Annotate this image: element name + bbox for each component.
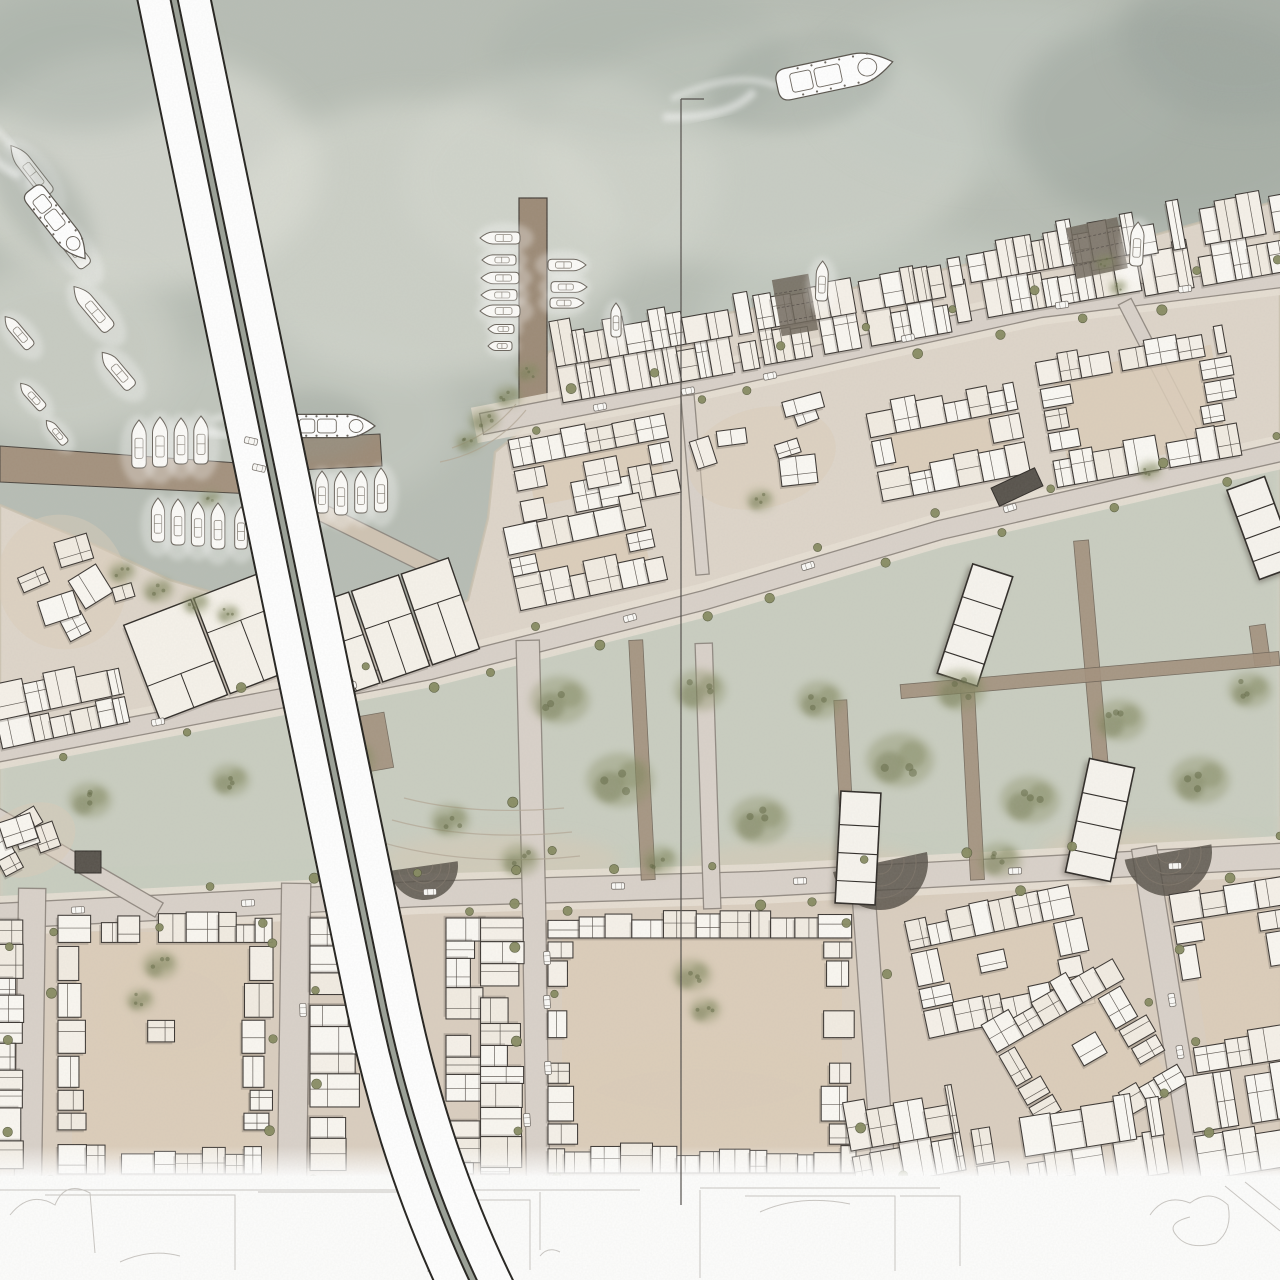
grain-layer xyxy=(0,0,1280,1280)
masterplan-stage xyxy=(0,0,1280,1280)
masterplan-drawing xyxy=(0,0,1280,1280)
paper-grain xyxy=(0,0,1280,1280)
